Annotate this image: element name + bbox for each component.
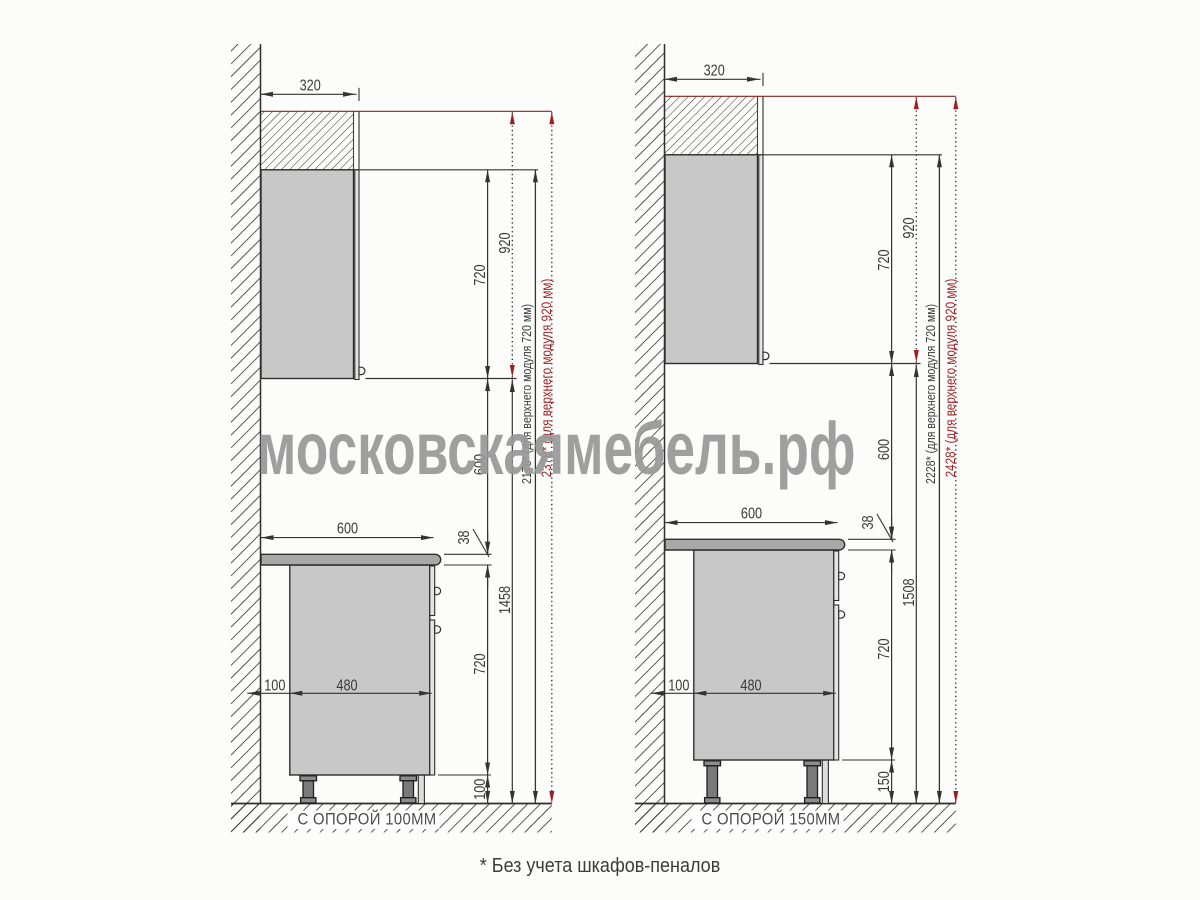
svg-text:600: 600 [337, 520, 358, 537]
svg-text:150: 150 [876, 771, 893, 792]
svg-text:720: 720 [472, 264, 489, 285]
svg-text:38: 38 [860, 515, 877, 529]
svg-text:480: 480 [336, 677, 357, 694]
svg-text:320: 320 [704, 62, 725, 79]
svg-text:1508: 1508 [901, 578, 918, 606]
svg-text:С ОПОРОЙ 150ММ: С ОПОРОЙ 150ММ [701, 809, 840, 829]
svg-text:480: 480 [740, 677, 761, 694]
svg-text:720: 720 [876, 638, 893, 659]
svg-text:38: 38 [456, 530, 473, 544]
svg-text:720: 720 [472, 653, 489, 674]
svg-text:С ОПОРОЙ 100ММ: С ОПОРОЙ 100ММ [297, 809, 436, 829]
svg-text:920: 920 [901, 217, 918, 238]
svg-text:320: 320 [300, 77, 321, 94]
svg-text:600: 600 [741, 505, 762, 522]
svg-text:2428* (для верхнего модуля 920: 2428* (для верхнего модуля 920 мм) [942, 279, 958, 478]
svg-text:720: 720 [876, 249, 893, 270]
svg-text:100: 100 [472, 779, 489, 800]
svg-text:2228* (для верхнего модуля 720: 2228* (для верхнего модуля 720 мм) [924, 304, 938, 484]
svg-text:920: 920 [497, 232, 514, 253]
svg-text:100: 100 [668, 677, 689, 694]
svg-text:100: 100 [264, 677, 285, 694]
svg-text:1458: 1458 [497, 586, 514, 614]
svg-text:600: 600 [876, 439, 893, 460]
svg-text:московскаямебель.рф: московскаямебель.рф [257, 407, 856, 490]
svg-text:* Без учета шкафов-пеналов: * Без учета шкафов-пеналов [480, 855, 720, 877]
